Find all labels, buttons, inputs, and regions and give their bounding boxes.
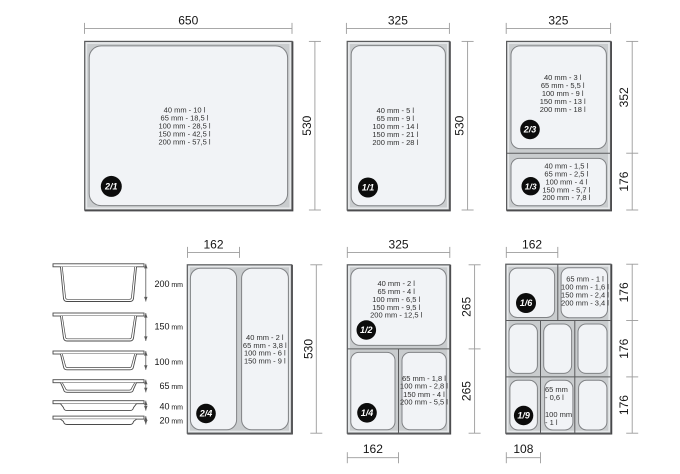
svg-text:200 mm - 5,5 l: 200 mm - 5,5 l: [400, 398, 448, 407]
svg-text:265: 265: [460, 297, 474, 317]
svg-text:108: 108: [513, 442, 533, 456]
svg-text:150 mm - 9 l: 150 mm - 9 l: [244, 357, 286, 366]
svg-text:200 mm - 3,4 l: 200 mm - 3,4 l: [561, 299, 609, 308]
svg-text:176: 176: [617, 338, 631, 358]
svg-text:200 mm - 18 l: 200 mm - 18 l: [540, 105, 586, 114]
svg-text:mm: mm: [171, 418, 183, 425]
svg-text:325: 325: [388, 14, 408, 28]
svg-text:530: 530: [301, 339, 315, 359]
svg-text:mm: mm: [171, 324, 183, 331]
svg-text:200 mm - 57,5 l: 200 mm - 57,5 l: [158, 138, 210, 147]
svg-text:176: 176: [617, 395, 631, 415]
svg-text:- 1 l: - 1 l: [545, 418, 558, 427]
svg-text:200 mm - 7,8 l: 200 mm - 7,8 l: [542, 193, 590, 202]
svg-text:650: 650: [178, 14, 198, 28]
svg-text:2/1: 2/1: [104, 182, 118, 192]
svg-text:530: 530: [453, 115, 467, 135]
svg-text:mm: mm: [171, 384, 183, 391]
svg-text:1/6: 1/6: [520, 298, 534, 308]
svg-text:162: 162: [522, 238, 542, 252]
svg-text:mm: mm: [171, 282, 183, 289]
svg-text:162: 162: [203, 238, 223, 252]
svg-text:100: 100: [154, 357, 169, 367]
svg-text:- 0,6 l: - 0,6 l: [545, 393, 564, 402]
svg-text:1/9: 1/9: [517, 411, 530, 421]
svg-text:176: 176: [617, 282, 631, 302]
svg-text:mm: mm: [171, 404, 183, 411]
svg-text:150: 150: [154, 322, 169, 332]
svg-text:325: 325: [389, 238, 409, 252]
svg-text:265: 265: [460, 381, 474, 401]
svg-text:1/1: 1/1: [362, 183, 375, 193]
svg-text:20: 20: [159, 416, 169, 426]
svg-text:2/4: 2/4: [199, 409, 213, 419]
svg-text:200 mm - 28 l: 200 mm - 28 l: [372, 138, 418, 147]
svg-text:352: 352: [617, 87, 631, 107]
svg-text:1/3: 1/3: [525, 181, 537, 191]
svg-text:200: 200: [154, 279, 169, 289]
svg-text:176: 176: [617, 171, 631, 191]
svg-text:530: 530: [300, 115, 314, 135]
svg-text:40: 40: [159, 402, 169, 412]
svg-text:1/4: 1/4: [361, 408, 374, 418]
svg-text:mm: mm: [171, 360, 183, 367]
svg-text:2/3: 2/3: [523, 125, 537, 135]
svg-text:162: 162: [363, 442, 383, 456]
svg-text:1/2: 1/2: [360, 325, 373, 335]
svg-text:65: 65: [159, 381, 169, 391]
svg-text:200 mm - 12,5 l: 200 mm - 12,5 l: [370, 311, 422, 320]
svg-text:325: 325: [548, 14, 568, 28]
